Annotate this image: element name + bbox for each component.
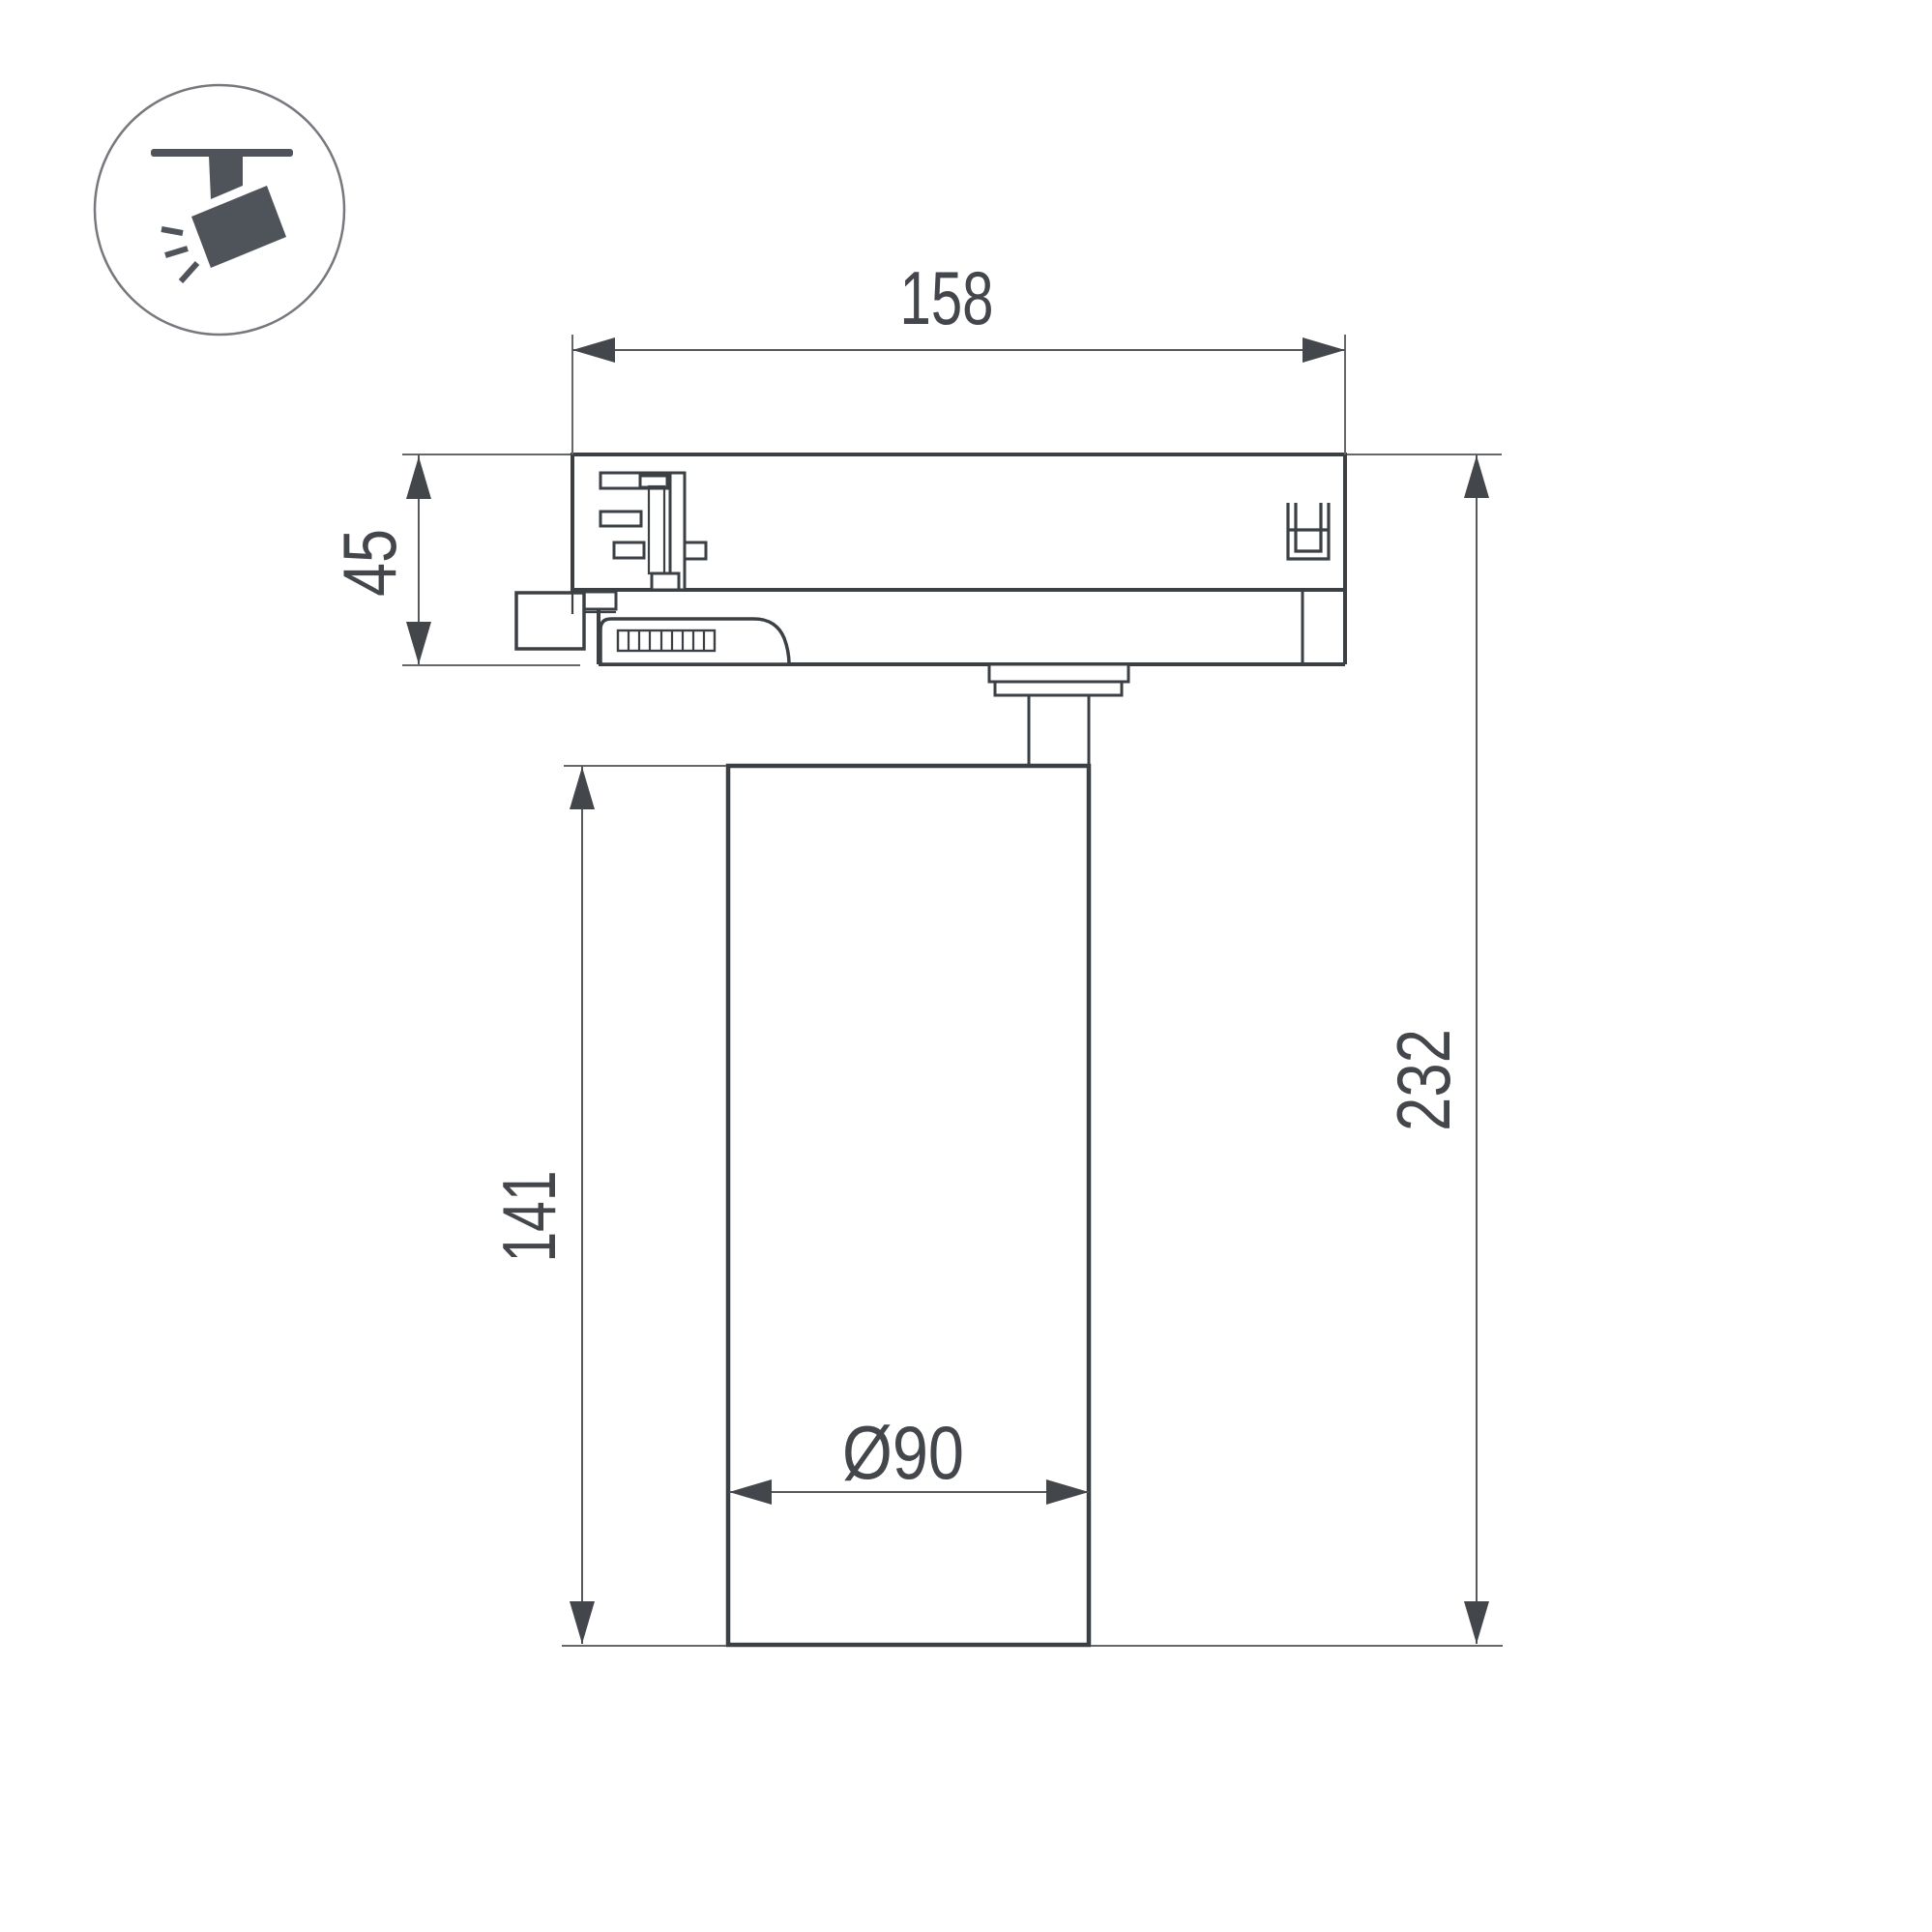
dim-adapter-height-label: 45 [327,529,412,597]
lamp-body-cylinder [728,766,1089,1645]
track-adapter-housing [572,454,1345,590]
dim-adapter-width-label: 158 [900,255,994,340]
arrowhead-left [572,337,615,363]
dim-body-height-label: 141 [486,1171,571,1263]
arrowhead-up [570,767,595,809]
adapter-grip-ribs [618,630,715,651]
dim-overall-height-label: 232 [1381,1029,1466,1131]
dimension-body-height: 141 [486,766,726,1646]
technical-drawing-page: 158 45 141 232 Ø90 [0,0,1932,1932]
swivel-flange-lower [995,682,1122,695]
swivel-flange-upper [989,664,1128,682]
track-light-icon [95,85,344,335]
adapter-step-detail [584,592,616,609]
arrowhead-down [1464,1601,1489,1644]
arrowhead-down [406,622,431,664]
arrowhead-up [406,456,431,499]
arrowhead-up [1464,455,1489,498]
swivel-joint [989,664,1128,766]
technical-drawing-canvas: 158 45 141 232 Ø90 [0,0,1932,1932]
swivel-stem [1029,695,1089,766]
adapter-lower-section [516,590,1345,664]
dimension-adapter-width: 158 [572,255,1345,454]
arrowhead-down [570,1601,595,1644]
adapter-lever-box [516,593,584,649]
dim-body-diameter-label: Ø90 [842,1410,964,1495]
dimension-overall-height: 232 [1091,454,1503,1646]
arrowhead-right [1303,337,1345,363]
icon-track-bar [151,149,293,157]
